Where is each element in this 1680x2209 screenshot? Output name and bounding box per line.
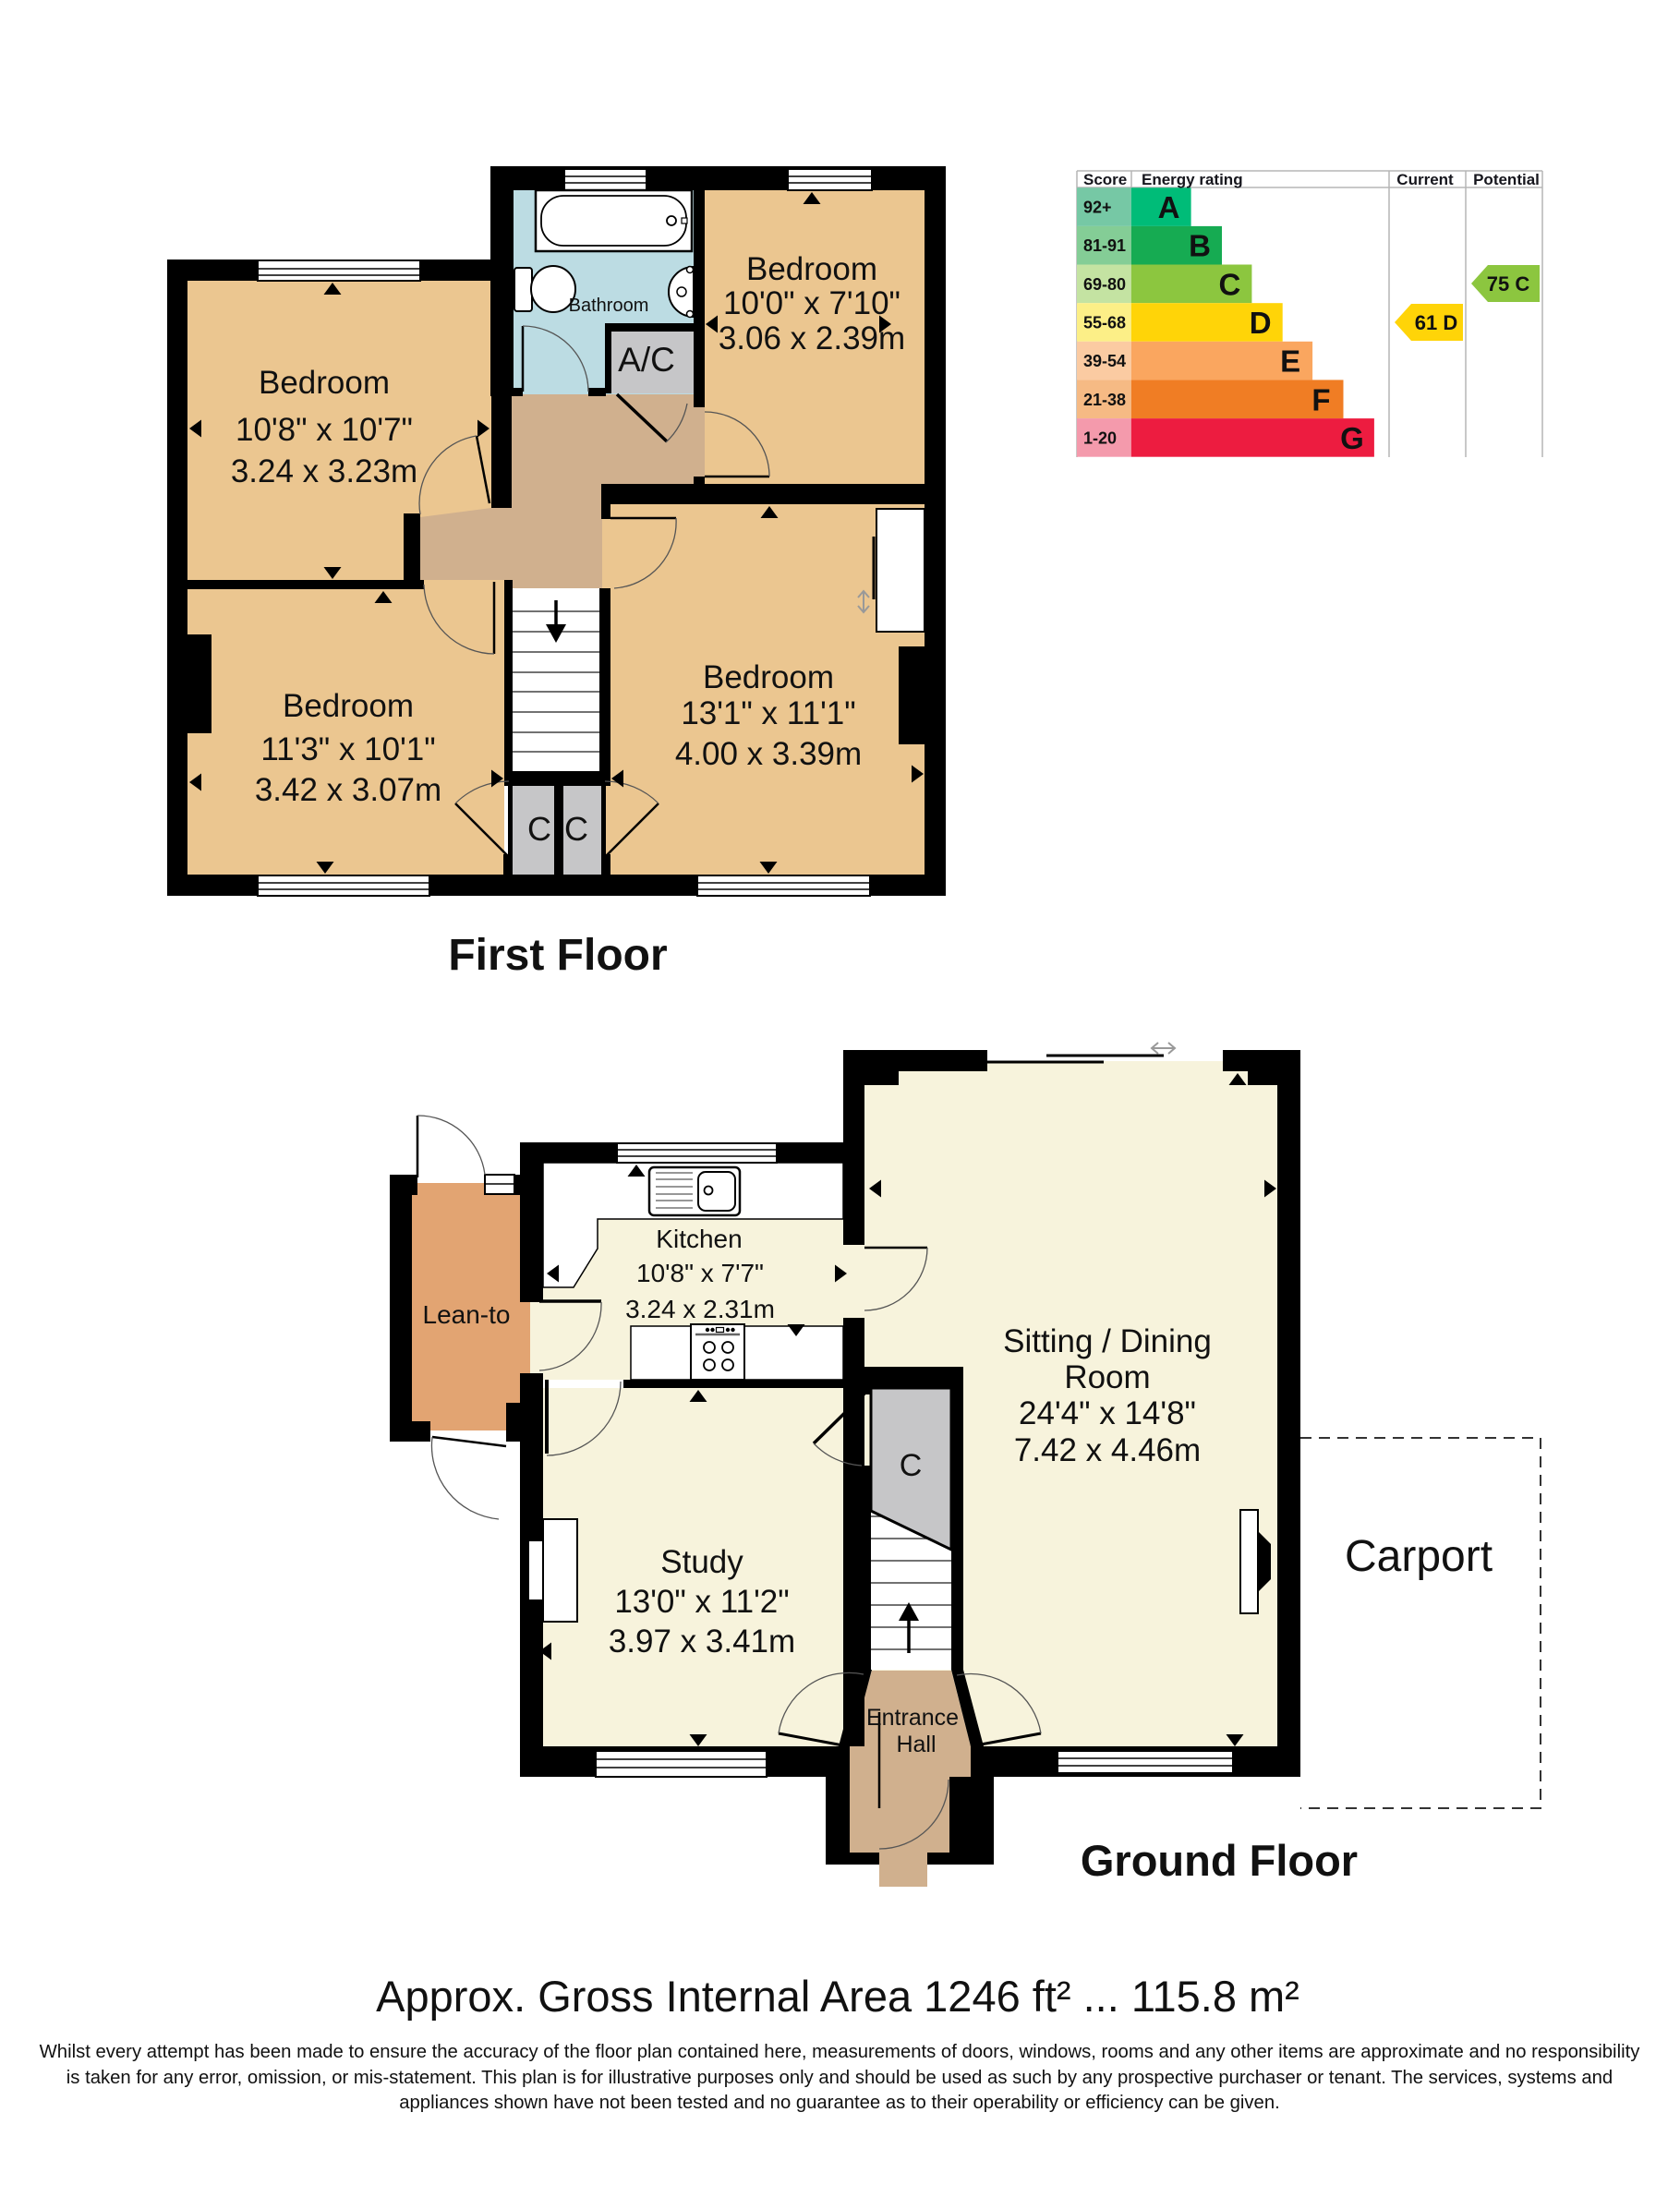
svg-text:C: C bbox=[1218, 267, 1240, 301]
svg-text:10'8" x 7'7": 10'8" x 7'7" bbox=[636, 1259, 764, 1287]
svg-text:Carport: Carport bbox=[1345, 1532, 1493, 1581]
svg-text:24'4" x 14'8": 24'4" x 14'8" bbox=[1019, 1395, 1196, 1431]
svg-text:61 D: 61 D bbox=[1415, 311, 1457, 334]
svg-text:A: A bbox=[1158, 190, 1180, 224]
svg-text:Lean-to: Lean-to bbox=[423, 1300, 511, 1329]
svg-text:Study: Study bbox=[660, 1544, 743, 1580]
svg-text:Bedroom: Bedroom bbox=[703, 659, 834, 695]
svg-text:Room: Room bbox=[1064, 1359, 1150, 1395]
svg-text:E: E bbox=[1280, 344, 1300, 379]
svg-text:13'1" x 11'1": 13'1" x 11'1" bbox=[681, 695, 855, 731]
svg-text:Bedroom: Bedroom bbox=[283, 688, 414, 724]
svg-text:4.00 x 3.39m: 4.00 x 3.39m bbox=[675, 736, 862, 772]
svg-text:Potential: Potential bbox=[1473, 171, 1540, 188]
svg-text:Bedroom: Bedroom bbox=[259, 365, 390, 401]
svg-text:3.06 x 2.39m: 3.06 x 2.39m bbox=[719, 320, 905, 356]
svg-text:75 C: 75 C bbox=[1487, 272, 1530, 296]
svg-text:55-68: 55-68 bbox=[1083, 314, 1126, 332]
svg-text:D: D bbox=[1250, 306, 1272, 340]
svg-text:B: B bbox=[1189, 229, 1211, 263]
svg-text:F: F bbox=[1311, 382, 1330, 416]
svg-text:69-80: 69-80 bbox=[1083, 275, 1126, 294]
svg-text:81-91: 81-91 bbox=[1083, 236, 1126, 255]
svg-text:1-20: 1-20 bbox=[1083, 429, 1117, 447]
svg-text:C: C bbox=[900, 1448, 923, 1483]
svg-text:G: G bbox=[1340, 421, 1364, 455]
svg-text:Entrance: Entrance bbox=[866, 1705, 959, 1731]
svg-text:Bedroom: Bedroom bbox=[746, 251, 877, 287]
svg-text:Kitchen: Kitchen bbox=[656, 1225, 742, 1253]
svg-text:3.42 x 3.07m: 3.42 x 3.07m bbox=[255, 772, 441, 808]
svg-text:7.42 x 4.46m: 7.42 x 4.46m bbox=[1014, 1432, 1201, 1468]
svg-text:Hall: Hall bbox=[896, 1732, 936, 1757]
svg-text:92+: 92+ bbox=[1083, 199, 1112, 217]
svg-text:10'8" x 10'7": 10'8" x 10'7" bbox=[236, 412, 413, 448]
svg-text:39-54: 39-54 bbox=[1083, 352, 1126, 370]
svg-text:A/C: A/C bbox=[618, 341, 675, 379]
svg-text:Approx. Gross Internal Area 12: Approx. Gross Internal Area 1246 ft² ...… bbox=[376, 1972, 1299, 2021]
svg-text:21-38: 21-38 bbox=[1083, 391, 1126, 409]
svg-text:3.97 x 3.41m: 3.97 x 3.41m bbox=[609, 1624, 795, 1660]
svg-text:C: C bbox=[527, 810, 551, 848]
svg-text:11'3" x 10'1": 11'3" x 10'1" bbox=[260, 731, 435, 767]
svg-text:Energy rating: Energy rating bbox=[1142, 171, 1243, 188]
svg-text:10'0" x 7'10": 10'0" x 7'10" bbox=[723, 285, 900, 321]
svg-text:Score: Score bbox=[1083, 171, 1127, 188]
svg-text:13'0" x 11'2": 13'0" x 11'2" bbox=[614, 1584, 789, 1620]
svg-text:3.24 x 3.23m: 3.24 x 3.23m bbox=[231, 453, 417, 489]
svg-text:Ground Floor: Ground Floor bbox=[1081, 1836, 1358, 1885]
svg-text:C: C bbox=[564, 810, 588, 848]
svg-text:Bathroom: Bathroom bbox=[569, 296, 649, 316]
svg-text:Sitting / Dining: Sitting / Dining bbox=[1003, 1323, 1212, 1359]
svg-text:First Floor: First Floor bbox=[448, 931, 667, 980]
svg-text:is taken for any error, omissi: is taken for any error, omission, or mis… bbox=[66, 2068, 1613, 2088]
svg-text:Current: Current bbox=[1396, 171, 1454, 188]
svg-text:3.24 x 2.31m: 3.24 x 2.31m bbox=[625, 1295, 775, 1323]
svg-text:appliances shown have not been: appliances shown have not been tested an… bbox=[399, 2093, 1280, 2113]
svg-text:Whilst every attempt has been: Whilst every attempt has been made to en… bbox=[40, 2042, 1641, 2062]
